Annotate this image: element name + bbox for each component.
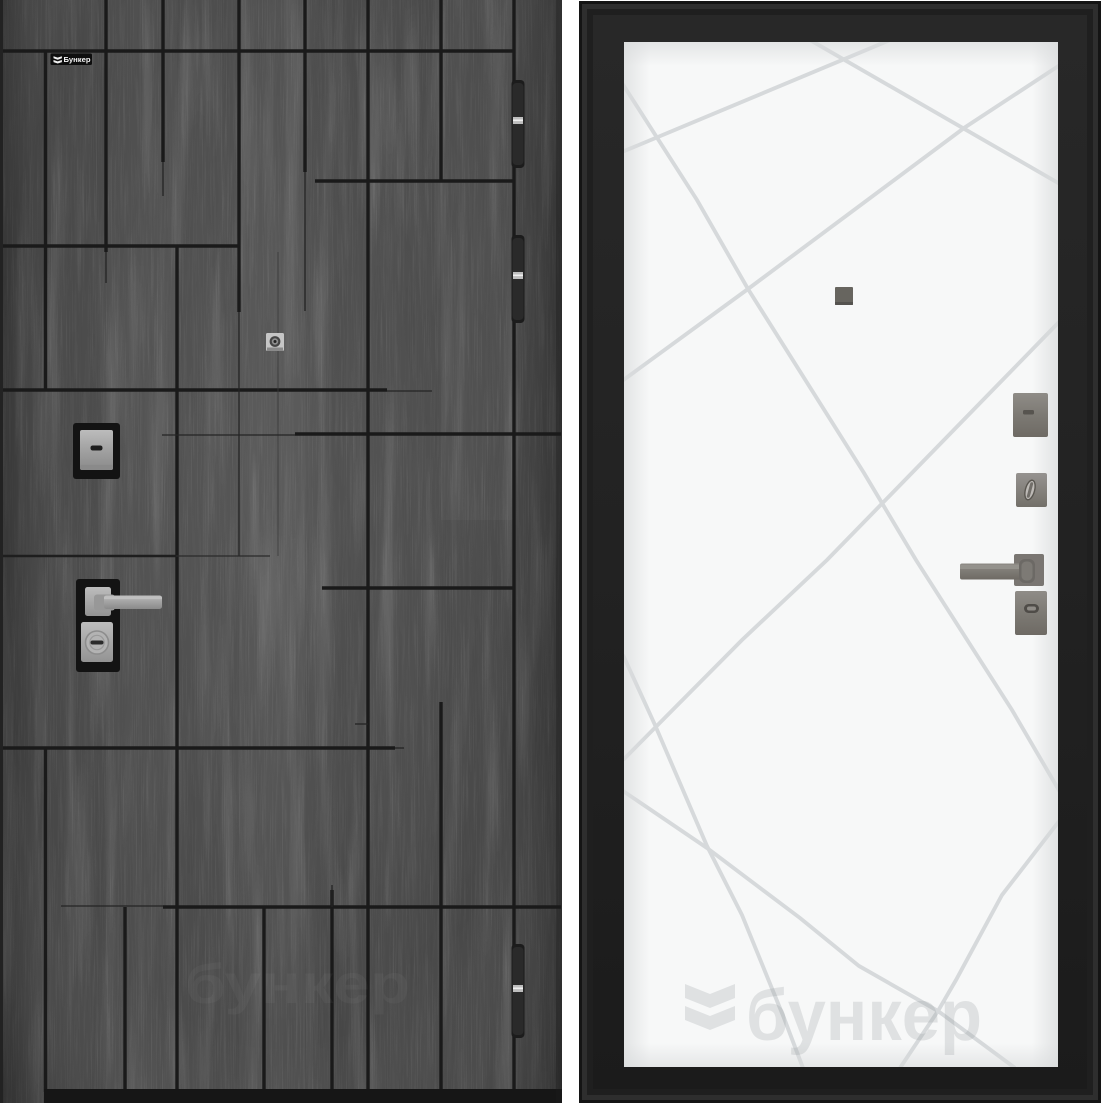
- svg-text:бункер: бункер: [185, 952, 410, 1015]
- svg-text:бункер: бункер: [746, 976, 982, 1056]
- svg-text:Бункер: Бункер: [64, 55, 91, 64]
